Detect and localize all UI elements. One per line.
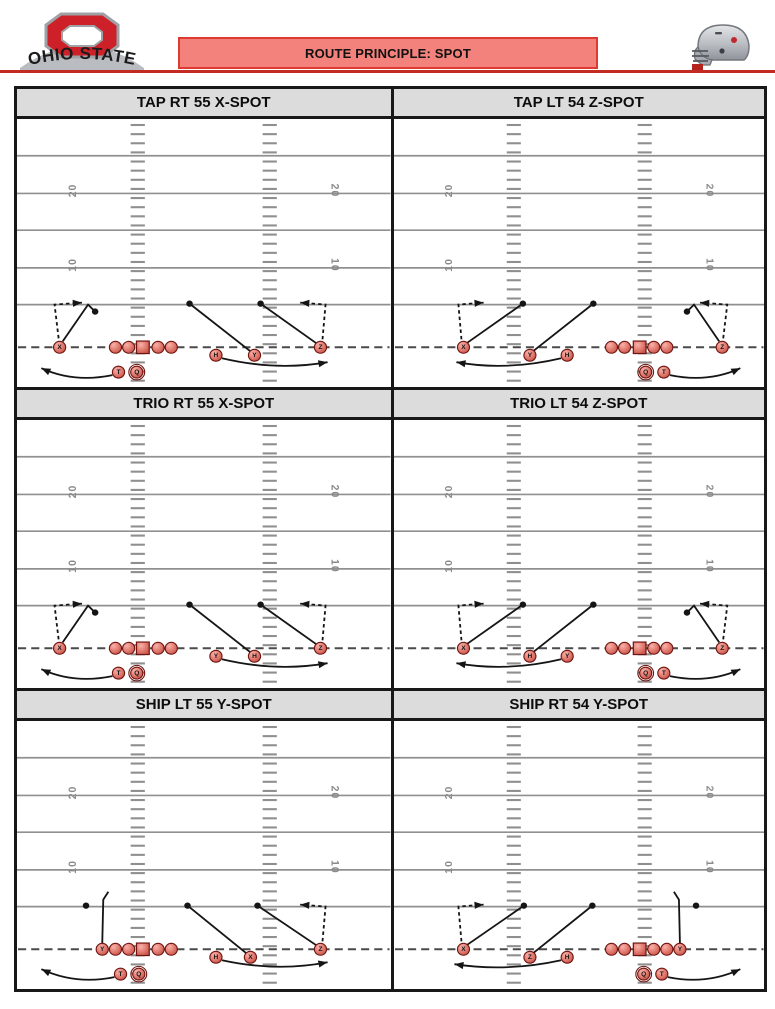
route-settle-dot xyxy=(683,609,689,615)
hash-mark xyxy=(131,626,145,628)
hash-mark xyxy=(637,635,651,637)
hash-mark xyxy=(506,726,520,728)
hash-mark xyxy=(637,836,651,838)
hash-mark xyxy=(506,443,520,445)
lineman-marker xyxy=(605,341,617,353)
hash-mark xyxy=(131,471,145,473)
hash-mark xyxy=(506,836,520,838)
hash-mark xyxy=(506,762,520,764)
hash-mark xyxy=(637,762,651,764)
hash-mark xyxy=(637,662,651,664)
hash-mark xyxy=(506,808,520,810)
hash-mark xyxy=(263,535,277,537)
player-letter: Q xyxy=(134,670,139,677)
hash-mark xyxy=(506,243,520,245)
hash-mark xyxy=(637,562,651,564)
hash-mark xyxy=(637,243,651,245)
lineman-marker xyxy=(660,943,672,955)
hash-mark xyxy=(263,525,277,527)
hash-mark xyxy=(131,307,145,309)
hash-mark xyxy=(506,927,520,929)
hash-mark xyxy=(263,471,277,473)
hash-mark xyxy=(263,361,277,363)
hash-mark xyxy=(131,635,145,637)
play-panel-5: SHIP LT 55 Y-SPOT 20201010YHXZTQ xyxy=(17,688,391,989)
hash-mark xyxy=(131,270,145,272)
hash-mark xyxy=(263,507,277,509)
hash-mark xyxy=(131,179,145,181)
hash-mark xyxy=(637,790,651,792)
hash-mark xyxy=(637,443,651,445)
page-header: OHIO STATE ROUTE PRINCIPLE: SPOT xyxy=(0,0,775,86)
hash-mark xyxy=(506,371,520,373)
player-letter: T xyxy=(116,670,120,677)
hash-mark xyxy=(506,589,520,591)
hash-mark xyxy=(263,288,277,290)
player-letter: Q xyxy=(641,971,646,978)
hash-mark xyxy=(506,434,520,436)
ohio-state-logo-graphic: OHIO STATE xyxy=(14,10,150,71)
route-settle-dot xyxy=(520,902,526,908)
hash-mark xyxy=(637,845,651,847)
hash-mark xyxy=(131,799,145,801)
hash-mark xyxy=(263,160,277,162)
lineman-marker xyxy=(109,943,121,955)
hash-mark xyxy=(263,297,277,299)
hash-mark xyxy=(506,881,520,883)
yard-number: 10 xyxy=(703,860,714,874)
player-letter: Z xyxy=(720,344,724,351)
yard-number: 10 xyxy=(329,258,341,272)
route-settle-dot xyxy=(590,300,596,306)
hash-mark xyxy=(637,963,651,965)
play-title: TRIO LT 54 Z-SPOT xyxy=(394,390,765,420)
play-title: TRIO RT 55 X-SPOT xyxy=(17,390,391,420)
center-square-marker xyxy=(136,943,149,956)
yard-number: 10 xyxy=(67,258,79,272)
lineman-marker xyxy=(165,943,177,955)
hash-mark xyxy=(263,516,277,518)
hash-mark xyxy=(131,562,145,564)
hash-mark xyxy=(131,790,145,792)
player-letter: X xyxy=(248,954,253,961)
hash-mark xyxy=(637,507,651,509)
helmet-decal xyxy=(731,37,737,43)
hash-mark xyxy=(131,863,145,865)
hash-mark xyxy=(131,535,145,537)
hash-mark xyxy=(131,224,145,226)
hash-mark xyxy=(637,890,651,892)
hash-mark xyxy=(506,973,520,975)
helmet-ear-hole xyxy=(719,48,724,53)
player-letter: Y xyxy=(214,653,219,660)
player-letter: H xyxy=(214,352,219,359)
player-letter: X xyxy=(461,946,466,953)
hash-mark xyxy=(506,635,520,637)
hash-mark xyxy=(506,535,520,537)
hash-mark xyxy=(131,890,145,892)
hash-mark xyxy=(263,544,277,546)
hash-mark xyxy=(131,753,145,755)
hash-mark xyxy=(131,142,145,144)
hash-mark xyxy=(637,781,651,783)
hash-mark xyxy=(506,799,520,801)
hash-mark xyxy=(506,662,520,664)
hash-mark xyxy=(637,142,651,144)
player-letter: T xyxy=(659,971,663,978)
field-diagram: 20201010XHYZQT xyxy=(394,420,765,688)
logo-block-o-inner xyxy=(62,26,102,46)
player-letter: H xyxy=(564,954,569,961)
yard-number: 20 xyxy=(329,786,341,800)
hash-mark xyxy=(131,909,145,911)
player-letter: H xyxy=(527,653,532,660)
play-panel-3: TRIO RT 55 X-SPOT 20201010XYHZTQ xyxy=(17,387,391,688)
hash-mark xyxy=(131,544,145,546)
field-diagram: 20201010XYHZQT xyxy=(394,119,765,387)
hash-mark xyxy=(131,188,145,190)
lineman-marker xyxy=(109,341,121,353)
yard-number: 20 xyxy=(67,485,79,499)
hash-mark xyxy=(637,525,651,527)
hash-mark xyxy=(131,762,145,764)
play-title: SHIP LT 55 Y-SPOT xyxy=(17,691,391,721)
player-letter: X xyxy=(57,344,62,351)
hash-mark xyxy=(506,261,520,263)
hash-mark xyxy=(263,817,277,819)
hash-mark xyxy=(131,589,145,591)
yard-number: 20 xyxy=(703,786,714,800)
hash-mark xyxy=(637,270,651,272)
play-title: TAP LT 54 Z-SPOT xyxy=(394,89,765,119)
route-settle-dot xyxy=(519,300,525,306)
lineman-marker xyxy=(605,943,617,955)
hash-mark xyxy=(131,808,145,810)
lineman-marker xyxy=(647,642,659,654)
hash-mark xyxy=(263,589,277,591)
hash-mark xyxy=(637,188,651,190)
lineman-marker xyxy=(152,642,164,654)
hash-mark xyxy=(263,726,277,728)
hash-mark xyxy=(131,261,145,263)
player-letter: Z xyxy=(318,645,322,652)
hash-mark xyxy=(131,662,145,664)
yard-number: 20 xyxy=(443,184,454,198)
lineman-marker xyxy=(165,642,177,654)
playbook-page: { "header": { "logo_text": "OHIO STATE",… xyxy=(0,0,775,1009)
player-letter: T xyxy=(661,670,665,677)
hash-mark xyxy=(637,744,651,746)
hash-mark xyxy=(637,489,651,491)
hash-mark xyxy=(263,480,277,482)
hash-mark xyxy=(263,443,277,445)
hash-mark xyxy=(506,854,520,856)
player-letter: Q xyxy=(643,369,648,376)
lineman-marker xyxy=(123,943,135,955)
hash-mark xyxy=(263,206,277,208)
player-letter: X xyxy=(57,645,62,652)
hash-mark xyxy=(263,224,277,226)
hash-mark xyxy=(263,890,277,892)
hash-mark xyxy=(637,772,651,774)
hash-mark xyxy=(506,480,520,482)
hash-mark xyxy=(131,516,145,518)
hash-mark xyxy=(637,863,651,865)
hash-mark xyxy=(637,881,651,883)
hash-mark xyxy=(506,781,520,783)
hash-mark xyxy=(637,617,651,619)
hash-mark xyxy=(506,672,520,674)
hash-mark xyxy=(263,662,277,664)
header-divider-rule xyxy=(0,70,775,73)
hash-mark xyxy=(637,498,651,500)
hash-mark xyxy=(637,753,651,755)
play-panel-4: TRIO LT 54 Z-SPOT 20201010XHYZQT xyxy=(391,387,765,688)
hash-mark xyxy=(506,872,520,874)
lineman-marker xyxy=(123,642,135,654)
hash-mark xyxy=(506,580,520,582)
hash-mark xyxy=(506,179,520,181)
hash-mark xyxy=(506,170,520,172)
center-square-marker xyxy=(633,341,646,354)
hash-mark xyxy=(131,480,145,482)
player-letter: T xyxy=(116,369,120,376)
hash-mark xyxy=(263,617,277,619)
hash-mark xyxy=(263,343,277,345)
play-title: TAP RT 55 X-SPOT xyxy=(17,89,391,119)
hash-mark xyxy=(263,808,277,810)
hash-mark xyxy=(131,881,145,883)
player-letter: X xyxy=(461,344,466,351)
player-letter: Z xyxy=(527,954,531,961)
hash-mark xyxy=(263,772,277,774)
hash-mark xyxy=(263,653,277,655)
helmet-shell xyxy=(698,25,749,60)
hash-mark xyxy=(506,206,520,208)
hash-mark xyxy=(263,781,277,783)
hash-mark xyxy=(637,425,651,427)
hash-mark xyxy=(506,963,520,965)
hash-mark xyxy=(131,781,145,783)
player-letter: Q xyxy=(134,369,139,376)
hash-mark xyxy=(637,817,651,819)
hash-mark xyxy=(263,142,277,144)
hash-mark xyxy=(637,516,651,518)
hash-mark xyxy=(263,927,277,929)
hash-mark xyxy=(637,160,651,162)
hash-mark xyxy=(506,571,520,573)
play-title: SHIP RT 54 Y-SPOT xyxy=(394,691,765,721)
player-letter: X xyxy=(461,645,466,652)
yard-number: 10 xyxy=(67,559,79,573)
hash-mark xyxy=(263,899,277,901)
hash-mark xyxy=(637,325,651,327)
route-settle-dot xyxy=(590,601,596,607)
hash-mark xyxy=(131,452,145,454)
yard-number: 10 xyxy=(443,559,454,573)
hash-mark xyxy=(637,151,651,153)
hash-mark xyxy=(263,371,277,373)
hash-mark xyxy=(131,854,145,856)
hash-mark xyxy=(131,206,145,208)
hash-mark xyxy=(637,197,651,199)
player-letter: H xyxy=(564,352,569,359)
hash-mark xyxy=(263,845,277,847)
hash-mark xyxy=(131,936,145,938)
field-diagram: 20201010XZHYQT xyxy=(394,721,765,989)
hash-mark xyxy=(263,425,277,427)
hash-mark xyxy=(263,380,277,382)
hash-mark xyxy=(637,224,651,226)
hash-mark xyxy=(263,452,277,454)
hash-mark xyxy=(637,307,651,309)
hash-mark xyxy=(637,461,651,463)
lineman-marker xyxy=(647,943,659,955)
player-letter: T xyxy=(119,971,123,978)
hash-mark xyxy=(637,544,651,546)
player-letter: Y xyxy=(564,653,569,660)
hash-mark xyxy=(131,279,145,281)
hash-mark xyxy=(131,316,145,318)
hash-mark xyxy=(131,817,145,819)
hash-mark xyxy=(263,863,277,865)
hash-mark xyxy=(131,608,145,610)
hash-mark xyxy=(506,681,520,683)
yard-number: 10 xyxy=(703,559,714,573)
hash-mark xyxy=(263,316,277,318)
player-letter: T xyxy=(661,369,665,376)
yard-number: 10 xyxy=(703,258,714,272)
lineman-marker xyxy=(605,642,617,654)
hash-mark xyxy=(131,215,145,217)
hash-mark xyxy=(263,790,277,792)
hash-mark xyxy=(506,772,520,774)
hash-mark xyxy=(263,973,277,975)
hash-mark xyxy=(637,626,651,628)
hash-mark xyxy=(637,471,651,473)
hash-mark xyxy=(263,872,277,874)
route-settle-dot xyxy=(519,601,525,607)
player-letter: H xyxy=(252,653,257,660)
hash-mark xyxy=(506,744,520,746)
hash-mark xyxy=(637,826,651,828)
hash-mark xyxy=(506,270,520,272)
lineman-marker xyxy=(123,341,135,353)
hash-mark xyxy=(637,553,651,555)
yard-number: 20 xyxy=(443,786,454,800)
hash-mark xyxy=(637,179,651,181)
player-letter: H xyxy=(214,954,219,961)
hash-mark xyxy=(506,471,520,473)
hash-mark xyxy=(506,452,520,454)
hash-mark xyxy=(263,598,277,600)
yard-number: 20 xyxy=(703,485,714,499)
hash-mark xyxy=(263,197,277,199)
hash-mark xyxy=(131,197,145,199)
hash-mark xyxy=(637,334,651,336)
route-settle-dot xyxy=(184,902,190,908)
hash-mark xyxy=(637,936,651,938)
helmet-vent xyxy=(715,32,722,34)
hash-mark xyxy=(131,160,145,162)
player-letter: Z xyxy=(318,946,322,953)
hash-mark xyxy=(263,836,277,838)
hash-mark xyxy=(263,945,277,947)
hash-mark xyxy=(506,343,520,345)
hash-mark xyxy=(506,325,520,327)
hash-mark xyxy=(131,461,145,463)
hash-mark xyxy=(263,325,277,327)
hash-mark xyxy=(637,571,651,573)
route-settle-dot xyxy=(83,902,89,908)
hash-mark xyxy=(506,489,520,491)
hash-mark xyxy=(637,918,651,920)
hash-mark xyxy=(506,653,520,655)
route-settle-dot xyxy=(683,308,689,314)
hash-mark xyxy=(131,288,145,290)
hash-mark xyxy=(637,133,651,135)
hash-mark xyxy=(506,899,520,901)
hash-mark xyxy=(131,735,145,737)
hash-mark xyxy=(506,498,520,500)
lineman-marker xyxy=(660,341,672,353)
hash-mark xyxy=(506,845,520,847)
player-letter: Q xyxy=(136,971,141,978)
hash-mark xyxy=(131,836,145,838)
route-settle-dot xyxy=(257,601,263,607)
route-settle-dot xyxy=(92,308,98,314)
field-diagram: 20201010XYHZTQ xyxy=(17,420,391,688)
hash-mark xyxy=(506,151,520,153)
hash-mark xyxy=(637,726,651,728)
hash-mark xyxy=(506,553,520,555)
hash-mark xyxy=(131,243,145,245)
hash-mark xyxy=(131,927,145,929)
lineman-marker xyxy=(165,341,177,353)
hash-mark xyxy=(131,617,145,619)
hash-mark xyxy=(506,626,520,628)
player-letter: Y xyxy=(527,352,532,359)
hash-mark xyxy=(131,963,145,965)
hash-mark xyxy=(131,234,145,236)
hash-mark xyxy=(263,151,277,153)
hash-mark xyxy=(637,288,651,290)
route-settle-dot xyxy=(186,601,192,607)
hash-mark xyxy=(637,799,651,801)
hash-mark xyxy=(263,799,277,801)
hash-mark xyxy=(637,124,651,126)
hash-mark xyxy=(263,681,277,683)
hash-mark xyxy=(263,270,277,272)
hash-mark xyxy=(506,817,520,819)
hash-mark xyxy=(637,598,651,600)
hash-mark xyxy=(263,762,277,764)
yard-number: 10 xyxy=(329,860,341,874)
hash-mark xyxy=(506,863,520,865)
player-letter: Y xyxy=(100,946,105,953)
hash-mark xyxy=(131,571,145,573)
hash-mark xyxy=(131,553,145,555)
hash-mark xyxy=(637,909,651,911)
yard-number: 20 xyxy=(443,485,454,499)
hash-mark xyxy=(263,261,277,263)
hash-mark xyxy=(263,461,277,463)
route-settle-dot xyxy=(257,300,263,306)
hash-mark xyxy=(131,598,145,600)
hash-mark xyxy=(637,589,651,591)
hash-mark xyxy=(263,498,277,500)
hash-mark xyxy=(131,361,145,363)
